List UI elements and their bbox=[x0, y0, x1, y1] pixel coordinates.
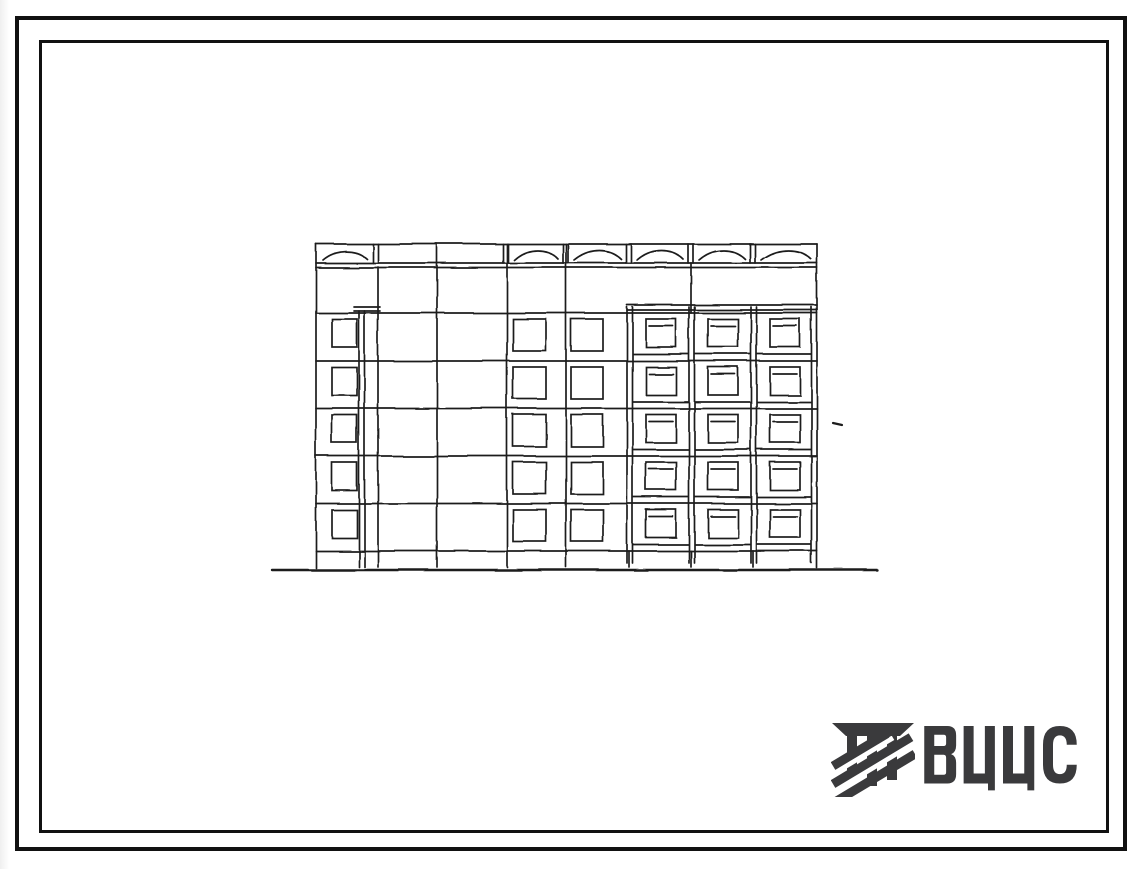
scanned-drawing-page: ВЦИС bbox=[0, 0, 1139, 869]
vcis-logo-wordmark bbox=[924, 726, 1077, 791]
facade-grid bbox=[316, 244, 817, 567]
plain-window-bays bbox=[513, 319, 603, 542]
balcony-bays bbox=[627, 305, 817, 563]
vcis-logo: ВЦИС bbox=[831, 719, 1077, 797]
column-capital-icon bbox=[831, 719, 915, 797]
stray-mark bbox=[833, 423, 842, 425]
stair-window-column bbox=[332, 307, 380, 567]
